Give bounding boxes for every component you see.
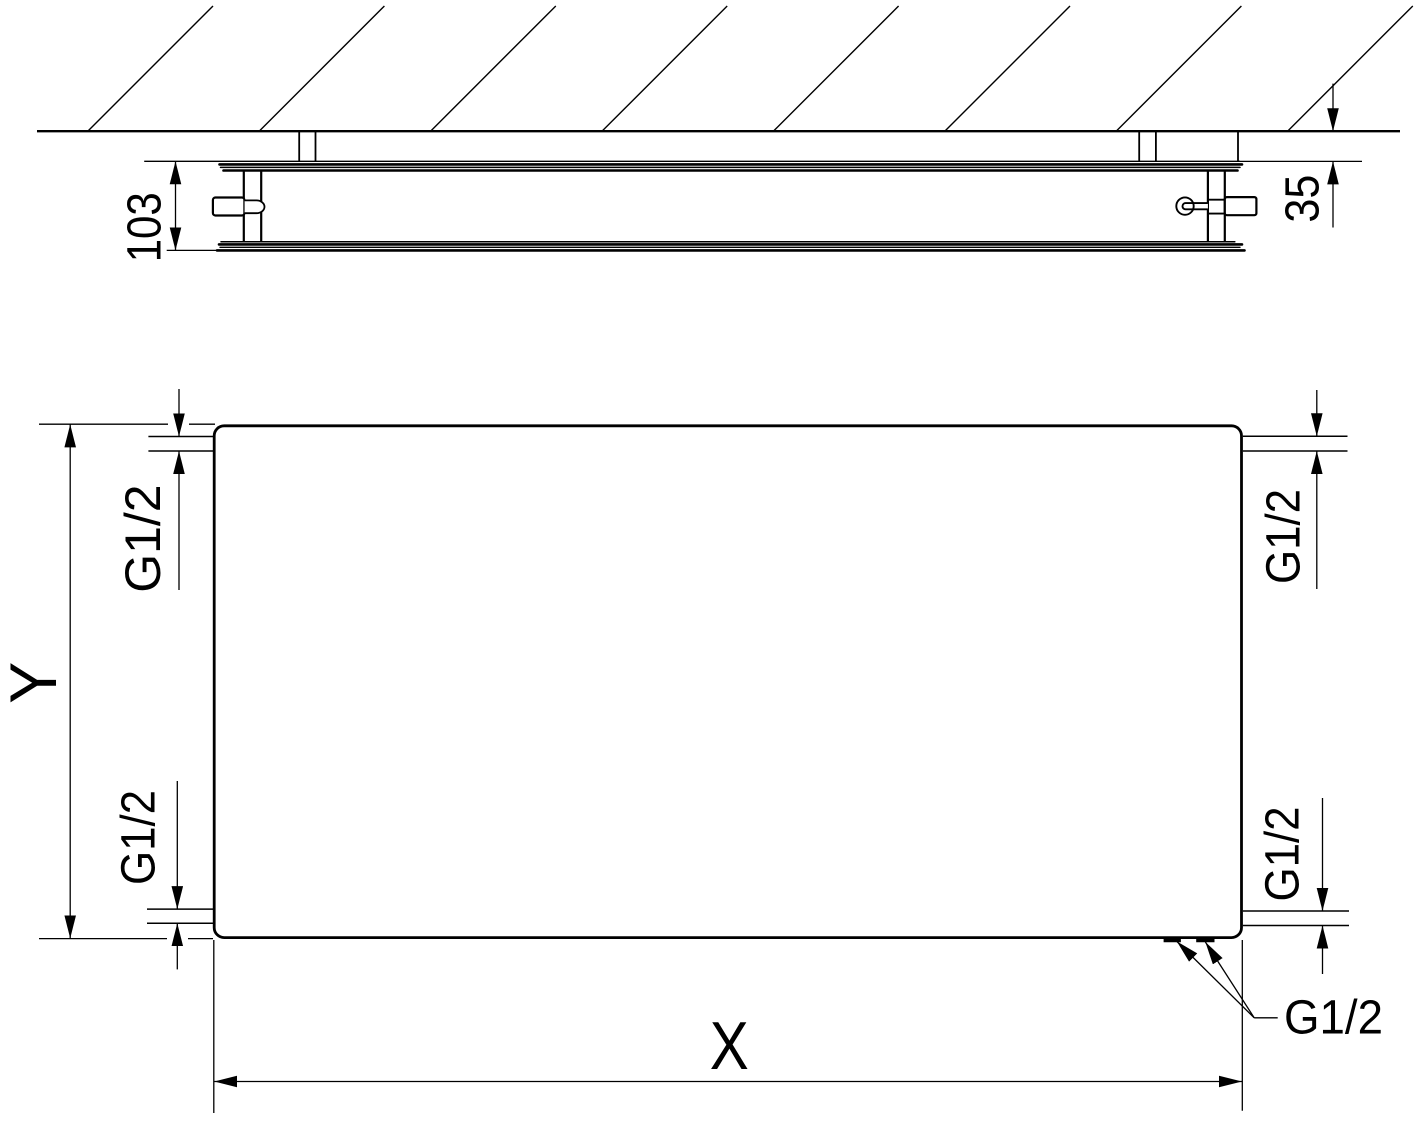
- svg-text:G1/2: G1/2: [1257, 807, 1310, 902]
- svg-text:103: 103: [119, 192, 172, 262]
- svg-text:G1/2: G1/2: [113, 790, 166, 885]
- svg-text:X: X: [710, 1008, 749, 1084]
- svg-text:35: 35: [1277, 175, 1330, 223]
- svg-text:Y: Y: [0, 662, 70, 704]
- svg-text:G1/2: G1/2: [115, 484, 171, 592]
- svg-text:G1/2: G1/2: [1284, 992, 1383, 1045]
- svg-text:G1/2: G1/2: [1258, 489, 1311, 584]
